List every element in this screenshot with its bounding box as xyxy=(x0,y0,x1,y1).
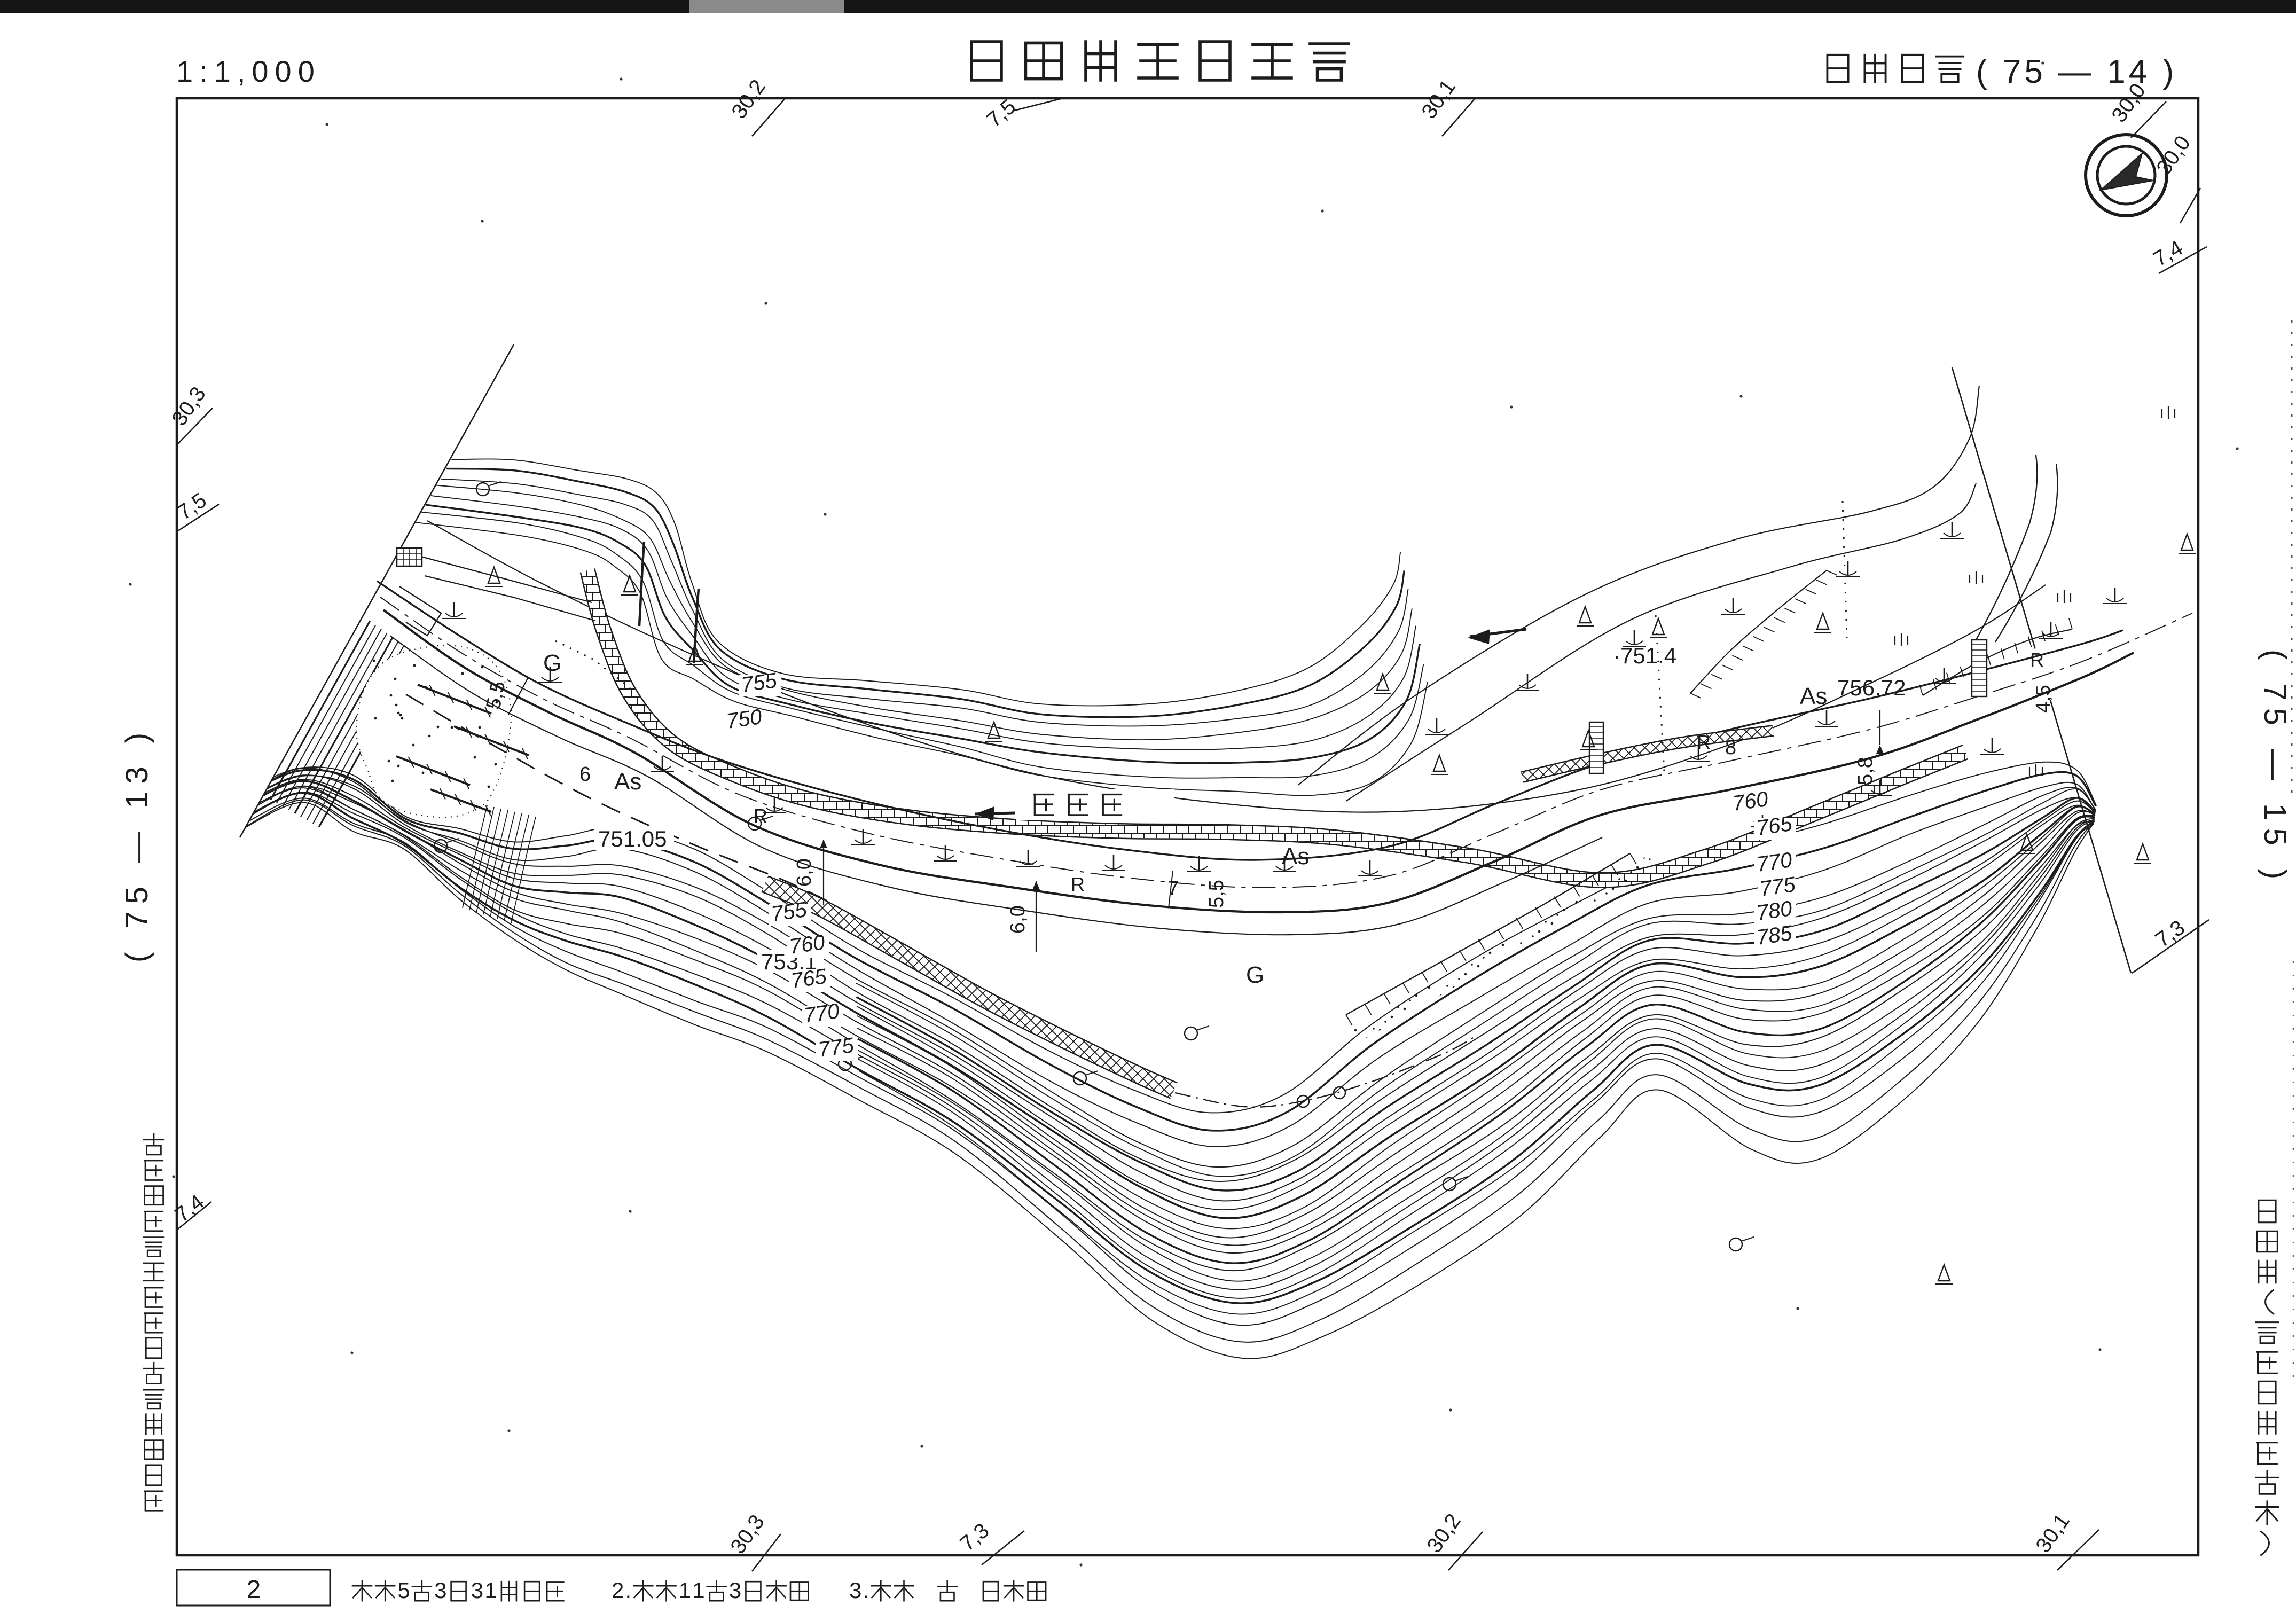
svg-text:R: R xyxy=(754,805,767,827)
svg-text:R: R xyxy=(1071,873,1085,895)
svg-text:·751.4: ·751.4 xyxy=(1613,643,1676,668)
svg-text:751.05: 751.05 xyxy=(598,826,667,851)
svg-text:3: 3 xyxy=(434,1578,446,1603)
svg-text:775: 775 xyxy=(817,1033,856,1062)
svg-text:775: 775 xyxy=(1758,873,1797,901)
svg-text:4,5: 4,5 xyxy=(2032,685,2055,713)
svg-text:As: As xyxy=(1282,843,1309,870)
svg-text:6,0: 6,0 xyxy=(1007,905,1029,934)
svg-text:G: G xyxy=(543,650,561,676)
svg-text:8: 8 xyxy=(1725,737,1736,759)
svg-text:.: . xyxy=(863,1578,869,1603)
svg-text:770: 770 xyxy=(802,999,841,1028)
svg-text:756.72: 756.72 xyxy=(1837,675,1906,700)
svg-text:R: R xyxy=(2030,649,2044,671)
svg-text:755: 755 xyxy=(770,898,809,926)
svg-text:5,5: 5,5 xyxy=(1205,880,1228,908)
svg-text:1:1,000: 1:1,000 xyxy=(176,54,321,88)
svg-text:( 75 — 13 ): ( 75 — 13 ) xyxy=(120,725,154,962)
svg-text:785: 785 xyxy=(1755,921,1794,950)
svg-text:2: 2 xyxy=(247,1576,261,1604)
svg-text:3: 3 xyxy=(471,1578,483,1603)
svg-text:760: 760 xyxy=(1731,787,1769,816)
svg-text:770: 770 xyxy=(1755,848,1793,876)
svg-text:760: 760 xyxy=(788,930,826,959)
svg-text:As: As xyxy=(614,769,641,795)
svg-text:( 75 — 14 ): ( 75 — 14 ) xyxy=(1976,53,2177,90)
svg-text:3: 3 xyxy=(729,1578,741,1603)
svg-text:As: As xyxy=(1800,683,1827,709)
svg-text:755: 755 xyxy=(740,669,779,697)
svg-text:6: 6 xyxy=(579,763,591,786)
svg-text:2: 2 xyxy=(612,1578,624,1603)
svg-text:5: 5 xyxy=(397,1578,410,1603)
svg-text:765: 765 xyxy=(789,965,828,993)
svg-text:G: G xyxy=(1246,962,1264,988)
svg-text:3: 3 xyxy=(849,1578,861,1603)
svg-text:5,8: 5,8 xyxy=(1854,757,1877,785)
svg-text:1: 1 xyxy=(692,1578,704,1603)
svg-text:1: 1 xyxy=(679,1578,691,1603)
svg-text:.: . xyxy=(625,1578,632,1603)
svg-text:1: 1 xyxy=(484,1578,497,1603)
svg-text:780: 780 xyxy=(1755,897,1793,925)
svg-text:6,0: 6,0 xyxy=(793,858,816,887)
svg-text:765: 765 xyxy=(1755,812,1794,840)
svg-text:R: R xyxy=(1697,731,1711,753)
svg-text:( 75 — 15 ): ( 75 — 15 ) xyxy=(2258,649,2292,887)
svg-text:750: 750 xyxy=(725,705,763,733)
svg-text:7: 7 xyxy=(1167,878,1179,900)
